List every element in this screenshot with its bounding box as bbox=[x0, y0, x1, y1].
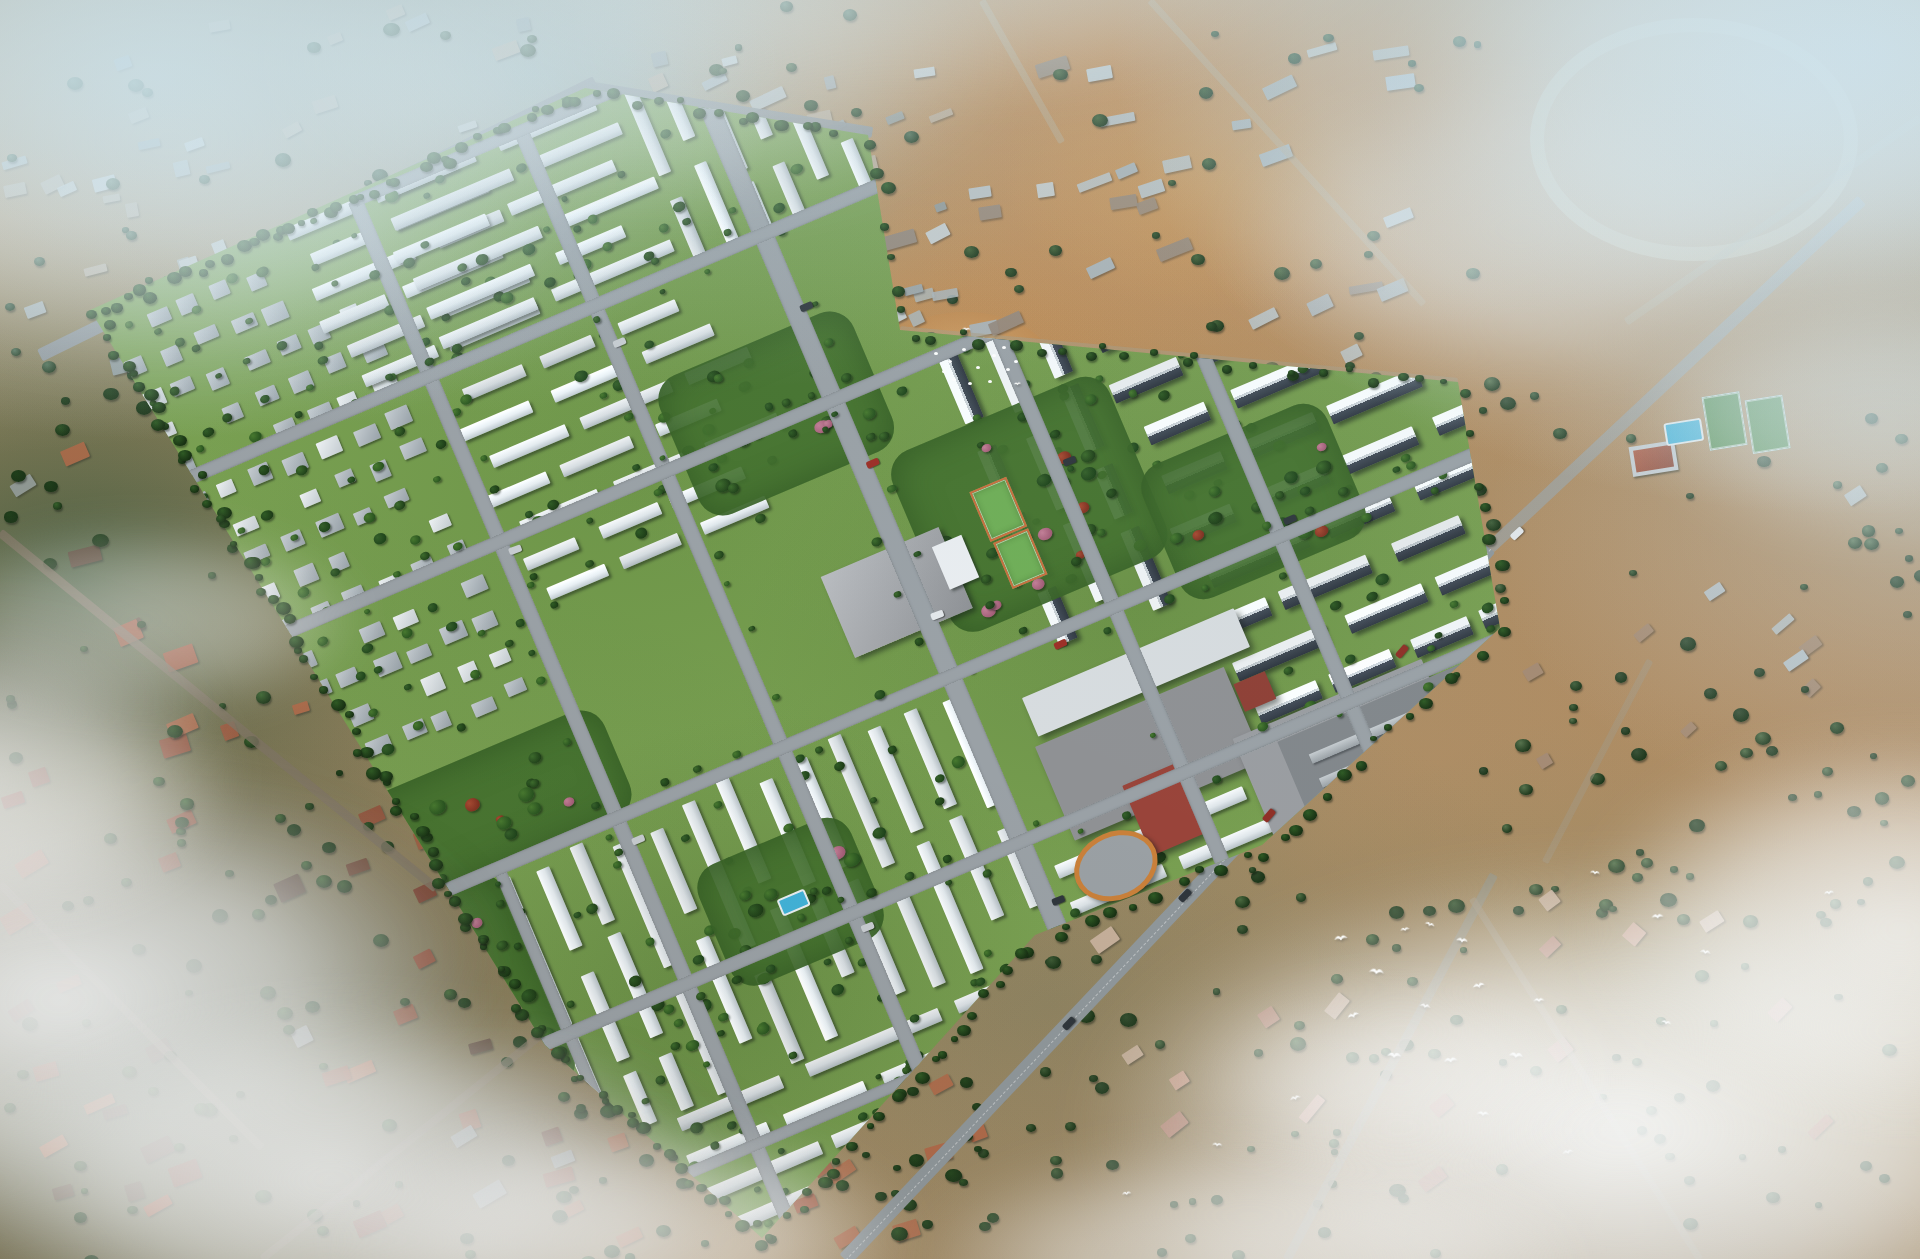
tree bbox=[42, 361, 56, 372]
tree bbox=[576, 1104, 586, 1112]
tree bbox=[92, 534, 109, 548]
tree bbox=[922, 1220, 932, 1228]
tree bbox=[565, 999, 576, 1009]
tree bbox=[504, 638, 515, 649]
tree bbox=[527, 35, 537, 43]
tree bbox=[887, 254, 894, 260]
bird-icon bbox=[961, 326, 971, 332]
tree bbox=[846, 1142, 858, 1152]
bird-icon bbox=[1455, 935, 1470, 945]
tree bbox=[1680, 637, 1696, 650]
tree bbox=[444, 891, 452, 897]
tree bbox=[1862, 525, 1876, 536]
tree bbox=[909, 1154, 924, 1167]
tree bbox=[1901, 775, 1915, 786]
egret bbox=[968, 382, 972, 385]
tree bbox=[191, 304, 203, 315]
tree bbox=[1179, 877, 1190, 886]
tree bbox=[1500, 597, 1509, 604]
tree bbox=[1346, 1052, 1359, 1063]
tree bbox=[1099, 343, 1106, 349]
tree bbox=[337, 880, 352, 893]
egret bbox=[948, 360, 952, 363]
tree bbox=[1415, 375, 1424, 382]
tree bbox=[330, 202, 342, 212]
villa-house bbox=[428, 513, 452, 533]
tree bbox=[81, 1188, 88, 1194]
tree bbox=[1484, 377, 1501, 391]
tree bbox=[190, 485, 200, 493]
tree bbox=[1374, 571, 1391, 587]
townhouse-row bbox=[319, 294, 390, 334]
townhouse-row bbox=[893, 888, 946, 987]
tree bbox=[560, 195, 568, 203]
tree bbox=[1670, 866, 1678, 873]
car bbox=[508, 544, 523, 555]
tree bbox=[1636, 849, 1644, 856]
tree bbox=[1684, 1176, 1694, 1184]
tree bbox=[753, 512, 767, 525]
tree bbox=[1848, 537, 1862, 548]
tree bbox=[1704, 688, 1717, 698]
tree bbox=[1050, 1156, 1061, 1165]
bird bbox=[1386, 1045, 1404, 1056]
tree bbox=[1389, 1184, 1405, 1197]
bird bbox=[1368, 961, 1387, 973]
tree bbox=[880, 223, 889, 231]
tree bbox=[432, 475, 442, 484]
tree bbox=[275, 153, 292, 167]
tree bbox=[612, 1105, 623, 1114]
bird bbox=[1398, 917, 1410, 925]
tree bbox=[1479, 407, 1487, 414]
tree bbox=[982, 868, 993, 878]
bird bbox=[1590, 861, 1603, 870]
villa-house bbox=[406, 643, 432, 664]
tree bbox=[199, 175, 210, 184]
tree bbox=[829, 130, 838, 137]
tree bbox=[803, 122, 813, 130]
tree bbox=[1206, 322, 1217, 331]
tree bbox=[427, 152, 441, 163]
bird bbox=[1650, 905, 1665, 914]
tree bbox=[1474, 41, 1482, 47]
tree bbox=[395, 1181, 403, 1188]
tree bbox=[389, 178, 399, 186]
tree bbox=[1244, 852, 1252, 858]
tree bbox=[892, 1091, 905, 1102]
tree bbox=[527, 113, 537, 122]
tree bbox=[1155, 1040, 1165, 1048]
tree bbox=[256, 229, 270, 241]
villa-house bbox=[160, 344, 183, 367]
tree bbox=[701, 1240, 710, 1247]
tree bbox=[520, 44, 536, 57]
townhouse-row bbox=[1391, 515, 1466, 562]
tree bbox=[198, 471, 207, 479]
tree bbox=[1621, 727, 1631, 735]
tree bbox=[1880, 820, 1887, 826]
tree bbox=[802, 1188, 812, 1196]
tree bbox=[317, 1226, 330, 1236]
bird bbox=[1456, 929, 1471, 939]
tree bbox=[1281, 834, 1289, 841]
tree bbox=[455, 142, 468, 153]
tree bbox=[915, 1072, 929, 1084]
tree bbox=[904, 131, 919, 143]
tree bbox=[221, 254, 234, 264]
villa-house bbox=[460, 574, 489, 599]
tree bbox=[1677, 914, 1690, 924]
villa-house bbox=[299, 488, 321, 508]
tree bbox=[1529, 884, 1543, 895]
tree bbox=[1157, 1248, 1168, 1257]
villa-house bbox=[359, 621, 385, 643]
villa-house bbox=[231, 312, 259, 334]
tree bbox=[124, 320, 134, 329]
tree bbox=[369, 190, 380, 199]
tree bbox=[382, 1119, 397, 1132]
tree bbox=[127, 1206, 138, 1215]
bird-icon bbox=[1650, 911, 1665, 920]
tree bbox=[818, 1177, 832, 1189]
tree bbox=[599, 1177, 607, 1184]
tree bbox=[400, 998, 410, 1006]
tree bbox=[551, 1047, 565, 1059]
tree bbox=[684, 1180, 694, 1188]
tree bbox=[1822, 767, 1833, 776]
tree bbox=[1895, 434, 1908, 445]
tree bbox=[191, 343, 202, 353]
tree bbox=[1329, 599, 1343, 612]
tree bbox=[723, 580, 731, 587]
tree bbox=[789, 162, 805, 176]
tree bbox=[830, 982, 847, 997]
tree bbox=[5, 303, 15, 311]
tree bbox=[1055, 932, 1067, 942]
tree bbox=[443, 158, 457, 169]
tree bbox=[1556, 1005, 1567, 1014]
tree bbox=[252, 909, 265, 919]
tree bbox=[892, 286, 905, 297]
villa-house bbox=[353, 423, 381, 447]
tree bbox=[17, 1070, 28, 1079]
tree bbox=[832, 1158, 840, 1165]
tree bbox=[1199, 87, 1213, 99]
villa-house bbox=[232, 515, 259, 536]
tree bbox=[1331, 1149, 1338, 1155]
tree bbox=[1010, 340, 1023, 351]
tree bbox=[1755, 732, 1771, 745]
tree bbox=[572, 910, 582, 919]
tree bbox=[932, 1056, 940, 1063]
tree bbox=[225, 870, 234, 877]
tree bbox=[659, 289, 667, 296]
egret bbox=[934, 352, 938, 355]
tree bbox=[1820, 918, 1832, 928]
tree bbox=[605, 834, 614, 842]
tree bbox=[460, 275, 473, 287]
bird-icon bbox=[1532, 996, 1545, 1004]
tree bbox=[178, 450, 192, 461]
tree bbox=[895, 385, 909, 397]
tree bbox=[672, 1017, 685, 1029]
tree bbox=[255, 574, 263, 581]
tree bbox=[479, 454, 488, 463]
villa-house bbox=[471, 610, 499, 634]
egret bbox=[1014, 360, 1018, 363]
tree bbox=[1120, 1013, 1137, 1027]
tree bbox=[1407, 977, 1418, 986]
tree bbox=[244, 557, 258, 569]
tree bbox=[972, 339, 985, 349]
tree bbox=[599, 1091, 608, 1098]
tree bbox=[974, 976, 986, 987]
car bbox=[631, 834, 646, 845]
existing-building bbox=[516, 16, 532, 31]
tree bbox=[372, 531, 388, 546]
tree bbox=[1863, 877, 1873, 885]
townhouse-row bbox=[617, 299, 679, 335]
tree bbox=[599, 391, 608, 400]
tree bbox=[639, 1154, 655, 1167]
townhouse-row bbox=[559, 436, 634, 478]
tree bbox=[366, 767, 381, 779]
tree bbox=[677, 97, 684, 103]
tree bbox=[143, 292, 157, 304]
tree bbox=[1499, 1059, 1507, 1066]
egret bbox=[1006, 368, 1010, 371]
townhouse-row bbox=[598, 502, 662, 539]
tree bbox=[1002, 966, 1013, 975]
tree bbox=[1875, 792, 1890, 804]
tree bbox=[301, 861, 312, 870]
tree bbox=[9, 752, 24, 764]
tree bbox=[473, 133, 482, 140]
tree bbox=[458, 913, 472, 925]
tree bbox=[1191, 254, 1205, 265]
townhouse-row bbox=[1144, 402, 1212, 446]
bird bbox=[1822, 881, 1835, 890]
tree bbox=[571, 1076, 578, 1082]
tree bbox=[1686, 873, 1694, 879]
bird bbox=[1469, 974, 1486, 986]
tree bbox=[1847, 806, 1861, 817]
egret bbox=[942, 370, 946, 373]
tree bbox=[1665, 1153, 1674, 1161]
tree bbox=[925, 336, 936, 345]
tree bbox=[74, 1212, 87, 1223]
tree bbox=[1448, 899, 1465, 913]
tree bbox=[704, 1194, 718, 1205]
townhouse-row bbox=[903, 708, 956, 809]
tree bbox=[202, 500, 212, 508]
tree bbox=[390, 806, 401, 815]
tree bbox=[201, 426, 215, 439]
tree bbox=[1249, 362, 1257, 369]
tree bbox=[275, 814, 286, 823]
tree bbox=[104, 320, 116, 330]
tree bbox=[289, 636, 304, 648]
tree bbox=[259, 509, 274, 523]
tree bbox=[255, 1190, 272, 1204]
tree bbox=[1629, 570, 1636, 576]
tree bbox=[145, 277, 153, 283]
bird bbox=[1012, 372, 1021, 378]
tree bbox=[1086, 352, 1097, 361]
tree bbox=[1860, 1161, 1872, 1171]
tree bbox=[616, 169, 627, 179]
tree bbox=[440, 31, 451, 40]
tree bbox=[299, 655, 308, 663]
tree bbox=[887, 745, 898, 755]
tree bbox=[331, 699, 346, 711]
tree bbox=[1384, 724, 1393, 731]
tree bbox=[1876, 463, 1888, 473]
villa-house bbox=[216, 478, 238, 498]
villa-house bbox=[399, 437, 427, 460]
tree bbox=[133, 382, 144, 391]
bird bbox=[1508, 1045, 1526, 1057]
tree bbox=[1092, 114, 1108, 127]
tree bbox=[11, 470, 26, 482]
tree bbox=[735, 1220, 750, 1232]
egret bbox=[988, 380, 992, 383]
tree bbox=[1766, 1192, 1780, 1203]
tree bbox=[675, 1163, 688, 1174]
egret bbox=[952, 378, 956, 381]
tree bbox=[1778, 1146, 1786, 1152]
tree bbox=[771, 201, 786, 215]
tree bbox=[311, 263, 321, 273]
tree bbox=[74, 1161, 87, 1172]
tree bbox=[307, 42, 320, 53]
existing-building bbox=[173, 159, 191, 177]
villa-house bbox=[147, 307, 172, 328]
tree bbox=[1185, 1234, 1196, 1243]
tree bbox=[148, 1087, 159, 1096]
tree bbox=[153, 327, 163, 336]
villa-house bbox=[420, 671, 446, 696]
villa-house bbox=[504, 677, 528, 698]
tree bbox=[465, 1250, 476, 1259]
tree bbox=[783, 1212, 791, 1219]
tree bbox=[1392, 944, 1401, 952]
tree bbox=[959, 1179, 968, 1186]
tree bbox=[255, 265, 270, 279]
tree bbox=[1460, 389, 1471, 398]
tree bbox=[822, 957, 833, 967]
tree bbox=[1903, 611, 1912, 618]
tree bbox=[7, 154, 16, 162]
tree bbox=[814, 745, 825, 755]
tennis-court bbox=[1745, 395, 1791, 454]
townhouse-row bbox=[523, 537, 579, 571]
tree bbox=[1319, 369, 1328, 377]
tree bbox=[392, 798, 400, 805]
tree bbox=[960, 1077, 973, 1088]
tree bbox=[180, 798, 193, 809]
tree bbox=[284, 614, 296, 624]
tree bbox=[428, 847, 440, 856]
tree bbox=[1288, 370, 1295, 376]
tree bbox=[1040, 1067, 1051, 1076]
bird bbox=[1476, 1103, 1492, 1113]
bird-icon bbox=[1211, 1140, 1224, 1148]
stadium-field bbox=[1530, 18, 1858, 261]
tree bbox=[1500, 397, 1516, 410]
tree bbox=[305, 803, 313, 810]
bird-icon bbox=[1589, 868, 1602, 877]
tree bbox=[1788, 794, 1797, 801]
tree bbox=[1235, 896, 1250, 908]
tree bbox=[1102, 626, 1112, 635]
tree bbox=[1895, 528, 1902, 534]
tennis-court bbox=[1702, 391, 1748, 450]
tree bbox=[657, 223, 670, 235]
tree bbox=[44, 481, 58, 492]
tree bbox=[1513, 906, 1524, 915]
tree bbox=[480, 943, 488, 949]
tree bbox=[1148, 892, 1163, 904]
egret bbox=[992, 354, 996, 357]
tree bbox=[893, 1165, 900, 1171]
townhouse-row bbox=[1108, 357, 1183, 404]
tree bbox=[1026, 1124, 1035, 1132]
villa-house bbox=[316, 435, 344, 460]
tree bbox=[774, 120, 788, 132]
tree bbox=[836, 1180, 849, 1191]
tree bbox=[967, 1012, 977, 1020]
tree bbox=[1356, 761, 1367, 770]
tree bbox=[800, 1206, 809, 1213]
tree bbox=[1905, 555, 1913, 562]
tree bbox=[429, 859, 443, 871]
tree bbox=[444, 989, 457, 999]
car bbox=[1053, 638, 1068, 650]
tree bbox=[1247, 1146, 1255, 1153]
tree bbox=[728, 206, 738, 215]
tree bbox=[1815, 1202, 1822, 1208]
tree bbox=[979, 1222, 991, 1231]
tree bbox=[696, 1184, 706, 1192]
tree bbox=[719, 1196, 731, 1206]
tree bbox=[912, 335, 920, 341]
tree bbox=[1168, 180, 1176, 186]
villa-house bbox=[392, 608, 419, 630]
tree bbox=[434, 438, 448, 451]
tree bbox=[1331, 974, 1343, 984]
tree bbox=[345, 711, 354, 718]
tree bbox=[104, 833, 118, 844]
tree bbox=[572, 224, 583, 234]
tree bbox=[260, 986, 276, 999]
tree bbox=[1689, 819, 1705, 832]
tree bbox=[656, 1225, 671, 1237]
tree bbox=[426, 602, 439, 614]
tree bbox=[771, 692, 781, 701]
tree bbox=[1018, 625, 1030, 636]
tree bbox=[1674, 1093, 1685, 1102]
tree bbox=[1890, 576, 1904, 588]
tree bbox=[123, 361, 136, 372]
tree bbox=[1005, 268, 1017, 278]
tree bbox=[1202, 158, 1217, 170]
tree bbox=[1766, 746, 1778, 756]
tree bbox=[1834, 994, 1842, 1001]
bird bbox=[1559, 1141, 1573, 1151]
tree bbox=[1333, 1129, 1341, 1136]
